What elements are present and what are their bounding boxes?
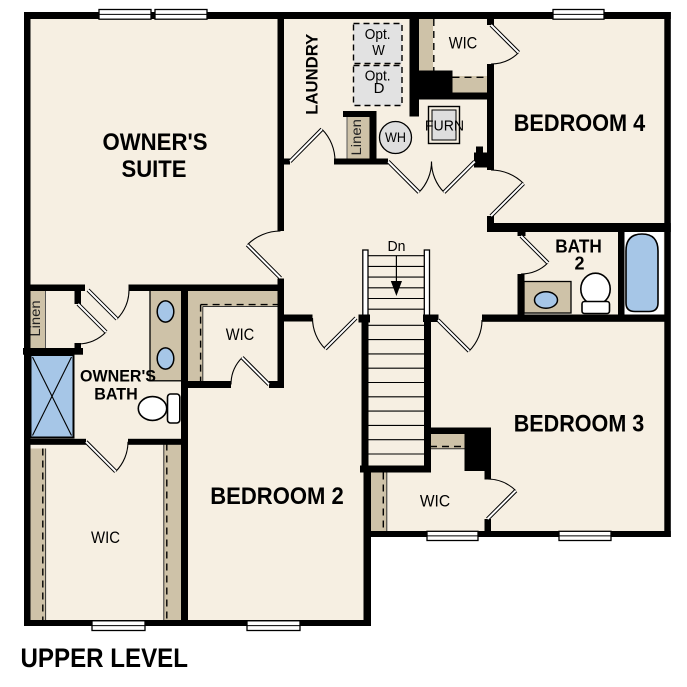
svg-text:Linen: Linen [348,119,364,155]
svg-text:BEDROOM 4: BEDROOM 4 [514,110,646,137]
svg-text:BEDROOM 3: BEDROOM 3 [514,411,645,438]
svg-text:SUITE: SUITE [122,156,187,183]
svg-text:OWNER'S: OWNER'S [80,367,156,385]
svg-text:2: 2 [574,254,584,274]
svg-text:BEDROOM 2: BEDROOM 2 [210,483,344,510]
svg-text:WH: WH [385,130,406,145]
svg-text:FURN: FURN [425,117,464,134]
svg-text:WIC: WIC [420,491,450,510]
svg-text:Opt.: Opt. [365,26,391,43]
svg-text:WIC: WIC [449,33,478,52]
svg-text:W: W [372,42,385,59]
svg-text:WIC: WIC [91,528,120,547]
svg-text:OWNER'S: OWNER'S [103,129,208,156]
svg-text:D: D [374,80,385,97]
svg-text:LAUNDRY: LAUNDRY [304,34,322,115]
svg-text:Dn: Dn [388,239,406,255]
svg-text:UPPER LEVEL: UPPER LEVEL [21,643,189,673]
svg-text:BATH: BATH [94,386,138,404]
svg-text:WIC: WIC [226,325,255,344]
svg-text:Linen: Linen [27,300,43,336]
